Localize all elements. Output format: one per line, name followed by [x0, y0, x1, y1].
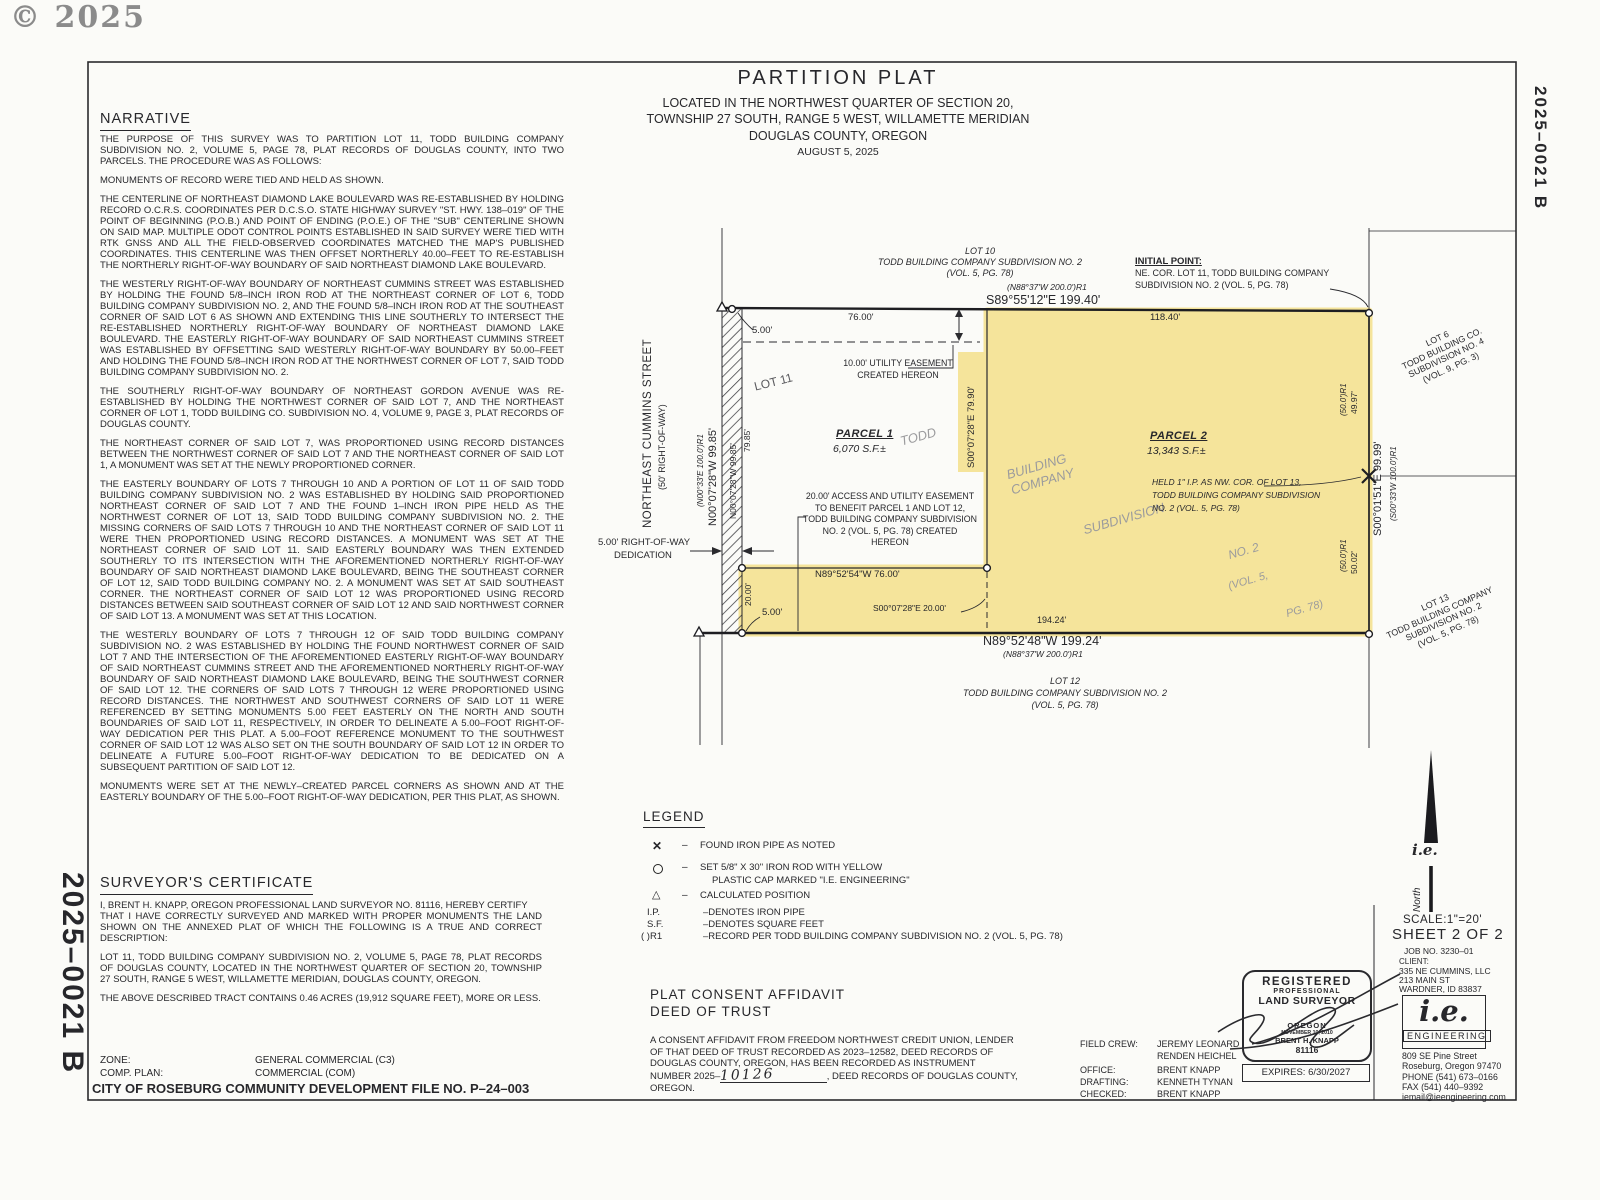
row-dedication-label-1: 5.00' RIGHT-OF-WAY — [598, 538, 690, 548]
instrument-number-handwritten: 10126 — [720, 1069, 775, 1082]
page-title: PARTITION PLAT — [578, 68, 1098, 90]
stamp-land-surveyor: LAND SURVEYOR — [1244, 995, 1370, 1007]
access-easement-line2: TO BENEFIT PARCEL 1 AND LOT 12, — [800, 503, 980, 515]
affidavit-line4b: , DEED RECORDS OF DOUGLAS COUNTY, — [827, 1071, 1018, 1082]
held-note-line2: TODD BUILDING COMPANY SUBDIVISION — [1152, 489, 1320, 502]
initial-point-line3: SUBDIVISION NO. 2 (VOL. 5, PG. 78) — [1135, 281, 1289, 291]
narrative-paragraph: MONUMENTS OF RECORD WERE TIED AND HELD A… — [100, 175, 564, 186]
firm-phone: PHONE (541) 673–0166 — [1402, 1072, 1506, 1082]
title-date: AUGUST 5, 2025 — [578, 147, 1098, 158]
initial-point-heading: INITIAL POINT: — [1135, 257, 1202, 267]
field-crew-name-1: JEREMY LEONARD — [1157, 1040, 1239, 1050]
narrative-paragraph: THE NORTHEAST CORNER OF SAID LOT 7, WAS … — [100, 438, 564, 471]
lot6-label: LOT 6 TODD BUILDING CO. SUBDIVISION NO. … — [1381, 309, 1508, 398]
street-row-width: (50' RIGHT-OF-WAY) — [658, 404, 668, 490]
firm-address-block: 809 SE Pine Street Roseburg, Oregon 9747… — [1402, 1051, 1506, 1102]
record-bearing-east: (S00°33'W 100.0')R1 — [1390, 446, 1399, 521]
title-location-1: LOCATED IN THE NORTHWEST QUARTER OF SECT… — [578, 97, 1098, 111]
legend-set-rod-text-2: PLASTIC CAP MARKED "I.E. ENGINEERING" — [712, 876, 910, 886]
narrative-paragraph: MONUMENTS WERE SET AT THE NEWLY–CREATED … — [100, 781, 564, 803]
certificate-paragraph: THE ABOVE DESCRIBED TRACT CONTAINS 0.46 … — [100, 993, 542, 1004]
dim-20ft: 20.00' — [744, 583, 753, 606]
narrative-text: THE PURPOSE OF THIS SURVEY WAS TO PARTIT… — [100, 134, 564, 803]
legend-calculated-text: CALCULATED POSITION — [700, 891, 810, 901]
certificate-paragraph: THAT I HAVE CORRECTLY SURVEYED AND MARKE… — [100, 911, 542, 944]
affidavit-line: OF THAT DEED OF TRUST RECORDED AS 2023–1… — [650, 1047, 1018, 1059]
field-crew-label: FIELD CREW: — [1080, 1040, 1138, 1050]
affidavit-heading-1: PLAT CONSENT AFFIDAVIT — [650, 988, 845, 1003]
logo-ie-text: i.e. — [1403, 996, 1485, 1026]
city-file-number: CITY OF ROSEBURG COMMUNITY DEVELOPMENT F… — [92, 1082, 529, 1096]
watermark-todd: TODD — [899, 426, 938, 449]
north-label: North — [1413, 888, 1424, 912]
sheet-number: SHEET 2 OF 2 — [1392, 927, 1504, 943]
lot10-volume: (VOL. 5, PG. 78) — [830, 268, 1130, 279]
document-number-top-right: 2025–0021 B — [1531, 86, 1549, 210]
legend-set-rod-text-1: SET 5/8" X 30" IRON ROD WITH YELLOW — [700, 863, 882, 873]
record-bearing-north: (N88°37'W 200.0')R1 — [1007, 283, 1087, 292]
affidavit-text: A CONSENT AFFIDAVIT FROM FREEDOM NORTHWE… — [650, 1035, 1018, 1095]
lot13-label: LOT 13 TODD BUILDING COMPANY SUBDIVISION… — [1371, 570, 1511, 663]
title-block: PARTITION PLAT LOCATED IN THE NORTHWEST … — [578, 68, 1098, 158]
legend-heading: LEGEND — [643, 810, 705, 828]
held-note-line1: HELD 1" I.P. AS NW. COR. OF LOT 13, — [1152, 476, 1320, 489]
copyright-watermark: © 2025 — [10, 2, 146, 34]
logo-engineering-text: ENGINEERING — [1403, 1030, 1491, 1042]
record-50ft-south: (50.0')R1 — [1340, 539, 1349, 572]
instrument-number-blank: 10126 — [720, 1070, 827, 1084]
legend-ip-abbr: I.P. — [647, 908, 660, 918]
record-bearing-west: (N00°33'E 100.0')R1 — [697, 434, 706, 507]
legend-dash: – — [682, 863, 688, 874]
drafting-label: DRAFTING: — [1080, 1078, 1129, 1088]
access-easement-line1: 20.00' ACCESS AND UTILITY EASEMENT — [800, 491, 980, 503]
north-boundary-line — [722, 308, 1369, 311]
utility-easement-note: 10.00' UTILITY EASEMENT CREATED HEREON — [818, 357, 978, 381]
stamp-registered: REGISTERED — [1244, 976, 1370, 988]
bearing-dedication-line: N00°07'28"W 99.85' — [729, 443, 738, 519]
title-location-2: TOWNSHIP 27 SOUTH, RANGE 5 WEST, WILLAME… — [578, 113, 1098, 127]
dim-50ft: 50.02' — [1350, 551, 1359, 574]
document-number-bottom-left: 2025–0021 B — [56, 872, 88, 1074]
scale-label: SCALE:1"=20' — [1403, 914, 1482, 926]
parcel1-name: PARCEL 1 — [836, 429, 893, 441]
affidavit-line4a: NUMBER 2025– — [650, 1071, 720, 1082]
zone-value: GENERAL COMMERCIAL (C3) — [255, 1056, 395, 1067]
legend-dash: – — [682, 841, 688, 852]
legend-sf-abbr: S.F. — [647, 920, 663, 930]
firm-city: Roseburg, Oregon 97470 — [1402, 1061, 1506, 1071]
held-iron-pipe-note: HELD 1" I.P. AS NW. COR. OF LOT 13, TODD… — [1152, 476, 1320, 514]
watermark-building-company: BUILDING COMPANY — [1005, 450, 1076, 499]
affidavit-heading-2: DEED OF TRUST — [650, 1005, 772, 1020]
legend-r1-abbr: ( )R1 — [641, 932, 662, 942]
lot12-volume: (VOL. 5, PG. 78) — [915, 700, 1215, 712]
partition-plat-sheet: © 2025 2025–0021 B 2025–0021 B PARTITION… — [0, 0, 1600, 1200]
parcel2-area: 13,343 S.F.± — [1147, 446, 1206, 457]
bearing-easement-east: S00°07'28"E 20.00' — [873, 604, 946, 613]
initial-point-line2: NE. COR. LOT 11, TODD BUILDING COMPANY — [1135, 269, 1329, 279]
row-dedication-label-2: DEDICATION — [614, 551, 672, 561]
north-arrow-icon — [1424, 750, 1438, 912]
certificate-text: I, BRENT H. KNAPP, OREGON PROFESSIONAL L… — [100, 900, 542, 1012]
lot11-label: LOT 11 — [753, 371, 794, 393]
firm-fax: FAX (541) 440–9392 — [1402, 1082, 1506, 1092]
checked-name: BRENT KNAPP — [1157, 1090, 1220, 1100]
stamp-state: OREGON — [1244, 1021, 1370, 1030]
office-label: OFFICE: — [1080, 1066, 1116, 1076]
narrative-paragraph: THE WESTERLY RIGHT-OF-WAY BOUNDARY OF NO… — [100, 279, 564, 378]
checked-label: CHECKED: — [1080, 1090, 1127, 1100]
surveyor-stamp: REGISTERED PROFESSIONAL LAND SURVEYOR OR… — [1242, 970, 1372, 1062]
legend-dash: – — [682, 891, 688, 902]
street-name: NORTHEAST CUMMINS STREET — [642, 339, 654, 528]
watermark-pg78: PG. 78) — [1285, 599, 1325, 621]
access-easement-note: 20.00' ACCESS AND UTILITY EASEMENT TO BE… — [800, 491, 980, 549]
narrative-paragraph: THE EASTERLY BOUNDARY OF LOTS 7 THROUGH … — [100, 479, 564, 622]
access-easement-line5: HEREON — [800, 537, 980, 549]
stamp-number: 81116 — [1244, 1045, 1370, 1055]
dim-79ft: 79.85' — [743, 429, 752, 452]
affidavit-line: OREGON. — [650, 1083, 1018, 1095]
bearing-north-boundary: S89°55'12"E 199.40' — [986, 294, 1100, 308]
affidavit-line: NUMBER 2025–10126, DEED RECORDS OF DOUGL… — [650, 1070, 1018, 1084]
parcel1-area: 6,070 S.F.± — [833, 444, 886, 455]
lot10-name: LOT 10 — [830, 246, 1130, 257]
legend-sf-text: –DENOTES SQUARE FEET — [703, 920, 824, 930]
ie-engineering-logo: i.e. ENGINEERING — [1402, 995, 1486, 1049]
bearing-south-boundary: N89°52'48"W 199.24' — [983, 635, 1101, 649]
utility-easement-line2: CREATED HEREON — [818, 369, 978, 381]
narrative-paragraph: THE PURPOSE OF THIS SURVEY WAS TO PARTIT… — [100, 134, 564, 167]
record-50ft-north: (50.0')R1 — [1340, 383, 1349, 416]
title-location-3: DOUGLAS COUNTY, OREGON — [578, 130, 1098, 144]
calculated-position-icon: △ — [652, 890, 660, 902]
narrative-paragraph: THE CENTERLINE OF NORTHEAST DIAMOND LAKE… — [100, 194, 564, 271]
dim-5ft-south: 5.00' — [762, 608, 782, 618]
set-rod-icon — [653, 864, 663, 874]
record-bearing-south: (N88°37'W 200.0')R1 — [1003, 650, 1083, 659]
legend-ip-text: –DENOTES IRON PIPE — [703, 908, 805, 918]
access-easement-line4: NO. 2 (VOL. 5, PG. 78) CREATED — [800, 526, 980, 538]
access-easement-line3: TODD BUILDING COMPANY SUBDIVISION — [800, 514, 980, 526]
narrative-heading: NARRATIVE — [100, 112, 191, 131]
zone-label: ZONE: — [100, 1056, 131, 1067]
dim-76ft: 76.00' — [848, 313, 874, 323]
held-note-line3: NO. 2 (VOL. 5, PG. 78) — [1152, 502, 1320, 515]
lot12-label: LOT 12 TODD BUILDING COMPANY SUBDIVISION… — [915, 676, 1215, 711]
watermark-vol5: (VOL. 5, — [1227, 571, 1270, 594]
lot10-subdivision: TODD BUILDING COMPANY SUBDIVISION NO. 2 — [830, 257, 1130, 268]
bearing-parcel-divider: S00°07'28"E 79.90' — [967, 386, 977, 468]
lot12-subdivision: TODD BUILDING COMPANY SUBDIVISION NO. 2 — [915, 688, 1215, 700]
client-address-2: WARDNER, ID 83837 — [1399, 985, 1482, 994]
north-arrow-logo-label: i.e. — [1412, 842, 1438, 858]
field-crew-name-2: RENDEN HEICHEL — [1157, 1052, 1237, 1062]
stamp-professional: PROFESSIONAL — [1244, 988, 1370, 995]
certificate-paragraph: I, BRENT H. KNAPP, OREGON PROFESSIONAL L… — [100, 900, 542, 911]
job-number: JOB NO. 3230–01 — [1404, 947, 1473, 956]
affidavit-line: A CONSENT AFFIDAVIT FROM FREEDOM NORTHWE… — [650, 1035, 1018, 1047]
comp-plan-label: COMP. PLAN: — [100, 1069, 163, 1080]
dim-118ft: 118.40' — [1150, 313, 1180, 323]
legend-r1-text: –RECORD PER TODD BUILDING COMPANY SUBDIV… — [703, 932, 1063, 942]
utility-easement-line1: 10.00' UTILITY EASEMENT — [818, 357, 978, 369]
certificate-paragraph: LOT 11, TODD BUILDING COMPANY SUBDIVISIO… — [100, 952, 542, 985]
certificate-heading: SURVEYOR'S CERTIFICATE — [100, 876, 313, 895]
stamp-name: BRENT H. KNAPP — [1244, 1036, 1370, 1045]
bearing-west-boundary: N00°07'28"W 99.85' — [708, 428, 720, 526]
narrative-paragraph: THE WESTERLY BOUNDARY OF LOTS 7 THROUGH … — [100, 630, 564, 773]
drafting-name: KENNETH TYNAN — [1157, 1078, 1233, 1088]
dim-5ft-north: 5.00' — [752, 326, 772, 336]
lot12-name: LOT 12 — [915, 676, 1215, 688]
bearing-easement-north: N89°52'54"W 76.00' — [815, 570, 900, 580]
watermark-no2: NO. 2 — [1227, 541, 1261, 562]
bearing-east-boundary: S00°01'51"E 99.99' — [1373, 442, 1385, 536]
legend-found-pipe-text: FOUND IRON PIPE AS NOTED — [700, 841, 835, 851]
stamp-expires: EXPIRES: 6/30/2027 — [1242, 1064, 1370, 1082]
comp-plan-value: COMMERCIAL (COM) — [255, 1069, 355, 1080]
found-pipe-icon: ✕ — [652, 840, 662, 853]
affidavit-line: DOUGLAS COUNTY, OREGON, HAS BEEN RECORDE… — [650, 1058, 1018, 1070]
dim-49ft: 49.97' — [1350, 391, 1359, 414]
office-name: BRENT KNAPP — [1157, 1066, 1220, 1076]
dim-194ft: 194.24' — [1037, 616, 1066, 626]
lot10-label: LOT 10 TODD BUILDING COMPANY SUBDIVISION… — [830, 246, 1130, 279]
parcel2-name: PARCEL 2 — [1150, 431, 1207, 443]
firm-street: 809 SE Pine Street — [1402, 1051, 1506, 1061]
narrative-paragraph: THE SOUTHERLY RIGHT-OF-WAY BOUNDARY OF N… — [100, 386, 564, 430]
firm-email: iemail@ieengineering.com — [1402, 1092, 1506, 1102]
